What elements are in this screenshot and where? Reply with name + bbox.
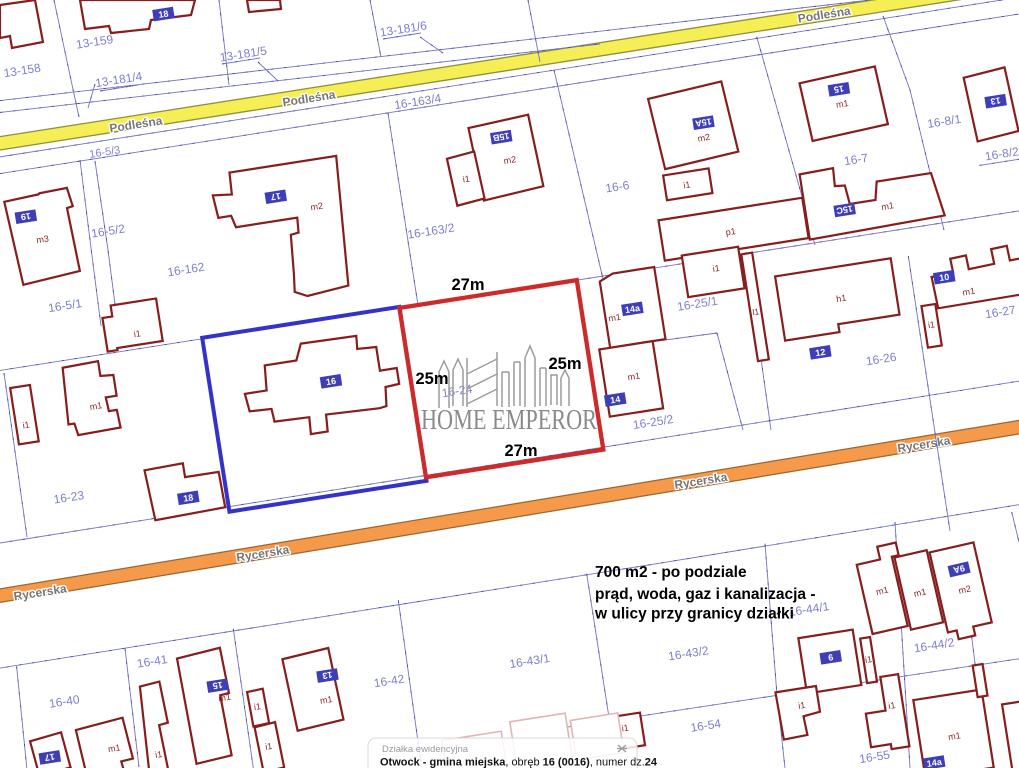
svg-text:14: 14 xyxy=(610,394,621,405)
svg-text:18: 18 xyxy=(158,8,169,19)
svg-text:m2: m2 xyxy=(697,132,711,144)
svg-text:14a: 14a xyxy=(926,757,943,768)
svg-text:m1: m1 xyxy=(89,400,103,412)
svg-text:25m: 25m xyxy=(548,355,581,373)
svg-text:m1: m1 xyxy=(107,742,121,754)
svg-text:Działka ewidencyjna: Działka ewidencyjna xyxy=(382,744,469,755)
svg-text:25m: 25m xyxy=(415,370,448,388)
svg-text:13: 13 xyxy=(322,670,333,681)
svg-text:h1: h1 xyxy=(836,293,847,304)
svg-text:w ulicy przy granicy działki: w ulicy przy granicy działki xyxy=(594,606,794,623)
svg-text:p1: p1 xyxy=(725,226,736,237)
svg-text:700 m2 - po podziale: 700 m2 - po podziale xyxy=(595,564,747,581)
svg-text:m1: m1 xyxy=(947,730,961,742)
svg-text:m1: m1 xyxy=(835,98,849,110)
svg-text:10: 10 xyxy=(939,272,950,283)
svg-text:m1: m1 xyxy=(962,286,976,298)
svg-text:m1: m1 xyxy=(608,312,622,324)
svg-text:m1: m1 xyxy=(627,371,641,383)
svg-text:17: 17 xyxy=(270,191,281,202)
svg-text:19: 19 xyxy=(20,211,31,222)
svg-text:m1: m1 xyxy=(218,692,232,704)
svg-text:m1: m1 xyxy=(881,200,895,212)
svg-text:15: 15 xyxy=(833,83,844,94)
svg-text:18: 18 xyxy=(183,492,194,503)
svg-text:m2: m2 xyxy=(503,154,517,166)
svg-text:m2: m2 xyxy=(310,201,324,213)
svg-text:27m: 27m xyxy=(504,442,537,460)
svg-text:17: 17 xyxy=(44,752,55,763)
svg-text:prąd, woda, gaz i kanalizacja: prąd, woda, gaz i kanalizacja - xyxy=(595,586,816,603)
svg-text:13: 13 xyxy=(990,95,1001,106)
svg-text:Otwock - gmina miejska, obręb: Otwock - gmina miejska, obręb 16 (0016),… xyxy=(380,757,658,768)
svg-text:m3: m3 xyxy=(36,233,50,245)
svg-text:m1: m1 xyxy=(319,694,333,706)
svg-text:HOME EMPEROR: HOME EMPEROR xyxy=(421,405,597,436)
svg-text:27m: 27m xyxy=(451,276,484,294)
svg-text:15: 15 xyxy=(212,680,223,691)
svg-text:16: 16 xyxy=(325,376,336,387)
svg-text:12: 12 xyxy=(815,347,826,358)
